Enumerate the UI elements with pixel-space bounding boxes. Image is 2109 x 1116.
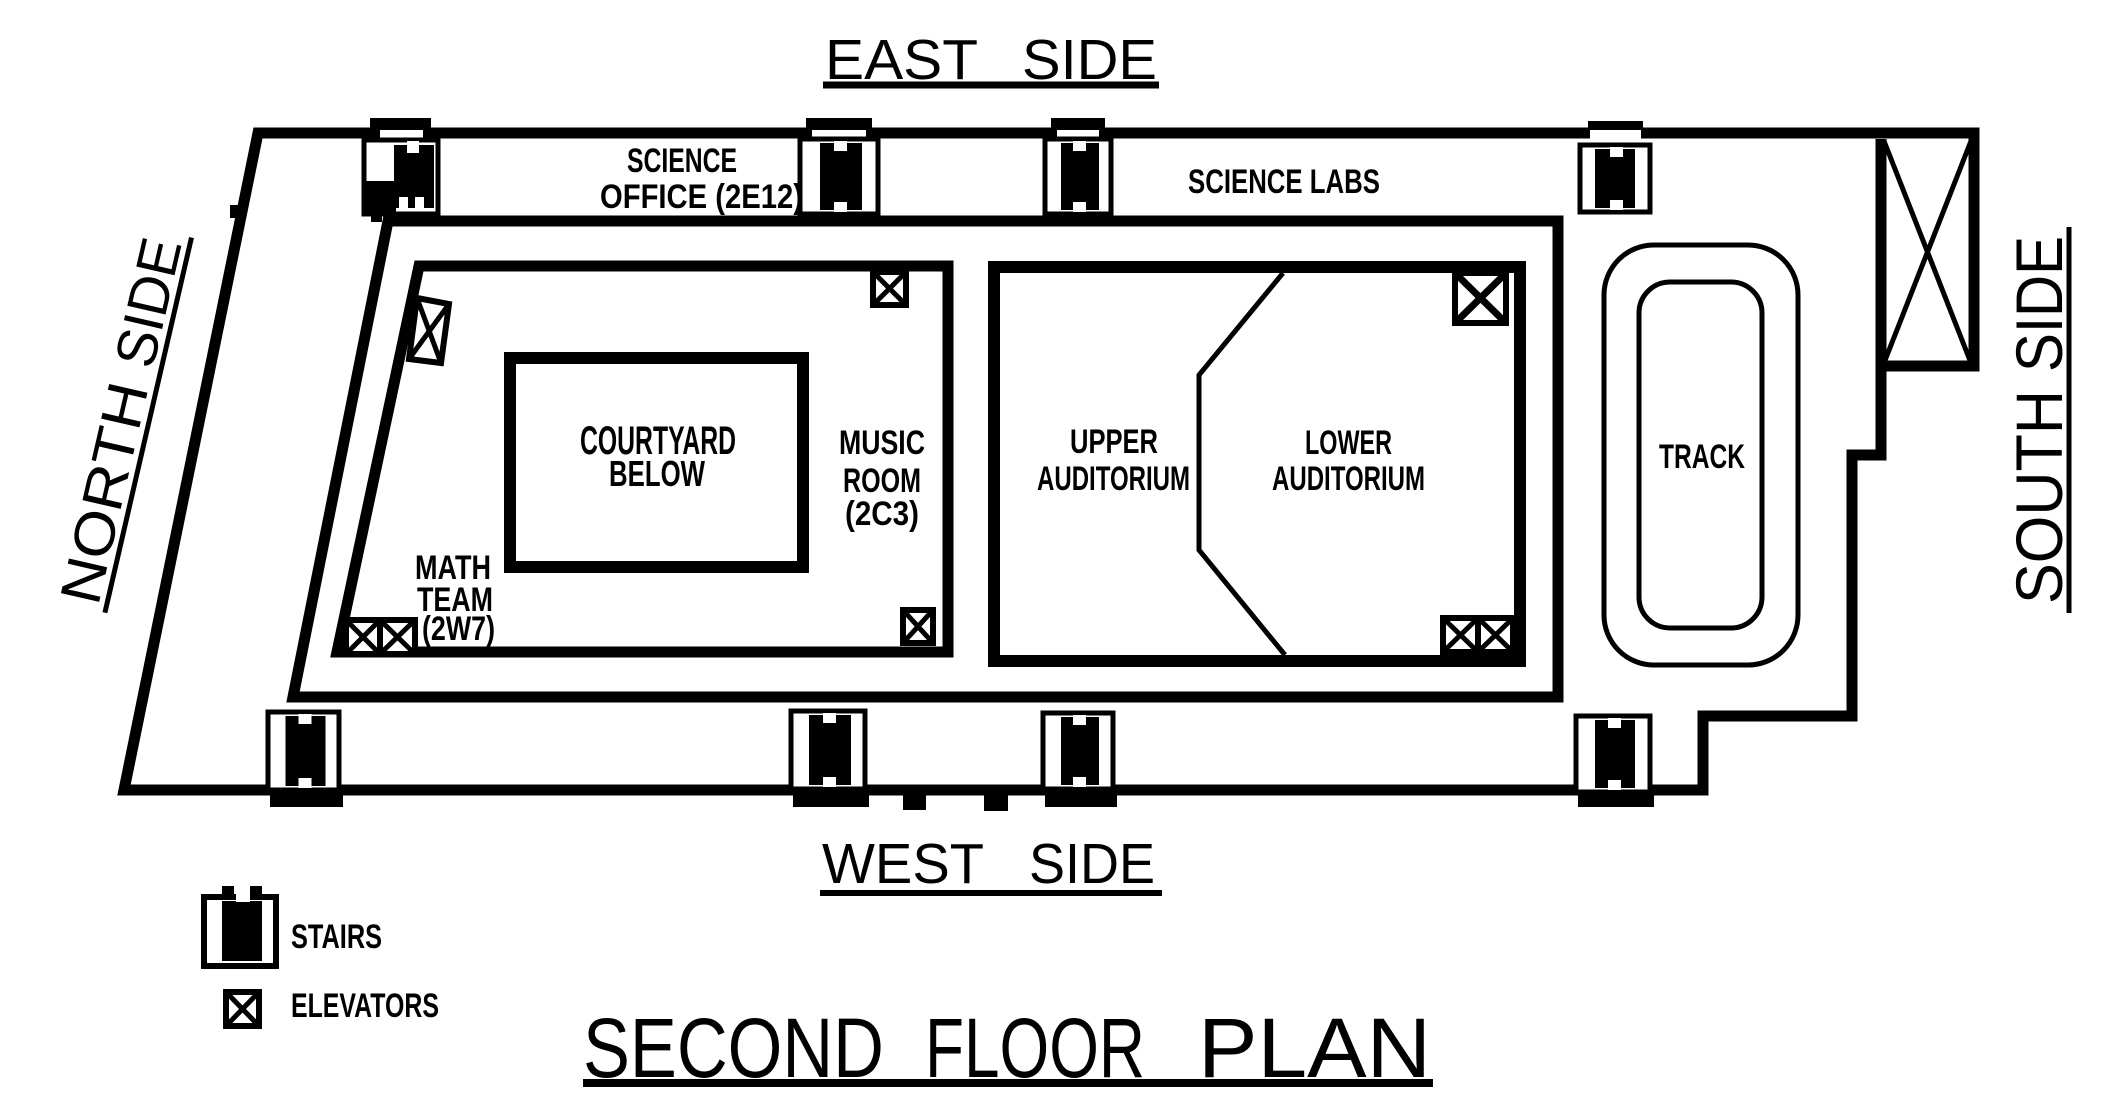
svg-text:SCIENCE: SCIENCE bbox=[627, 142, 737, 180]
svg-text:AUDITORIUM: AUDITORIUM bbox=[1272, 460, 1425, 498]
svg-text:STAIRS: STAIRS bbox=[291, 918, 382, 956]
svg-text:SOUTH: SOUTH bbox=[2002, 390, 2076, 604]
svg-text:MUSIC: MUSIC bbox=[839, 424, 925, 462]
svg-text:BELOW: BELOW bbox=[609, 453, 705, 494]
svg-text:SCIENCE LABS: SCIENCE LABS bbox=[1188, 163, 1380, 201]
svg-text:ELEVATORS: ELEVATORS bbox=[291, 987, 439, 1025]
svg-text:(2C3): (2C3) bbox=[845, 495, 919, 533]
svg-text:AUDITORIUM: AUDITORIUM bbox=[1037, 460, 1190, 498]
svg-text:(2W7): (2W7) bbox=[422, 610, 495, 648]
svg-text:SIDE: SIDE bbox=[1029, 832, 1155, 896]
svg-text:LOWER: LOWER bbox=[1305, 424, 1392, 462]
svg-text:SIDE: SIDE bbox=[2002, 236, 2076, 372]
svg-text:TRACK: TRACK bbox=[1659, 438, 1745, 476]
svg-text:WEST: WEST bbox=[822, 832, 984, 896]
svg-text:UPPER: UPPER bbox=[1070, 423, 1158, 461]
svg-text:OFFICE (2E12): OFFICE (2E12) bbox=[600, 178, 803, 216]
